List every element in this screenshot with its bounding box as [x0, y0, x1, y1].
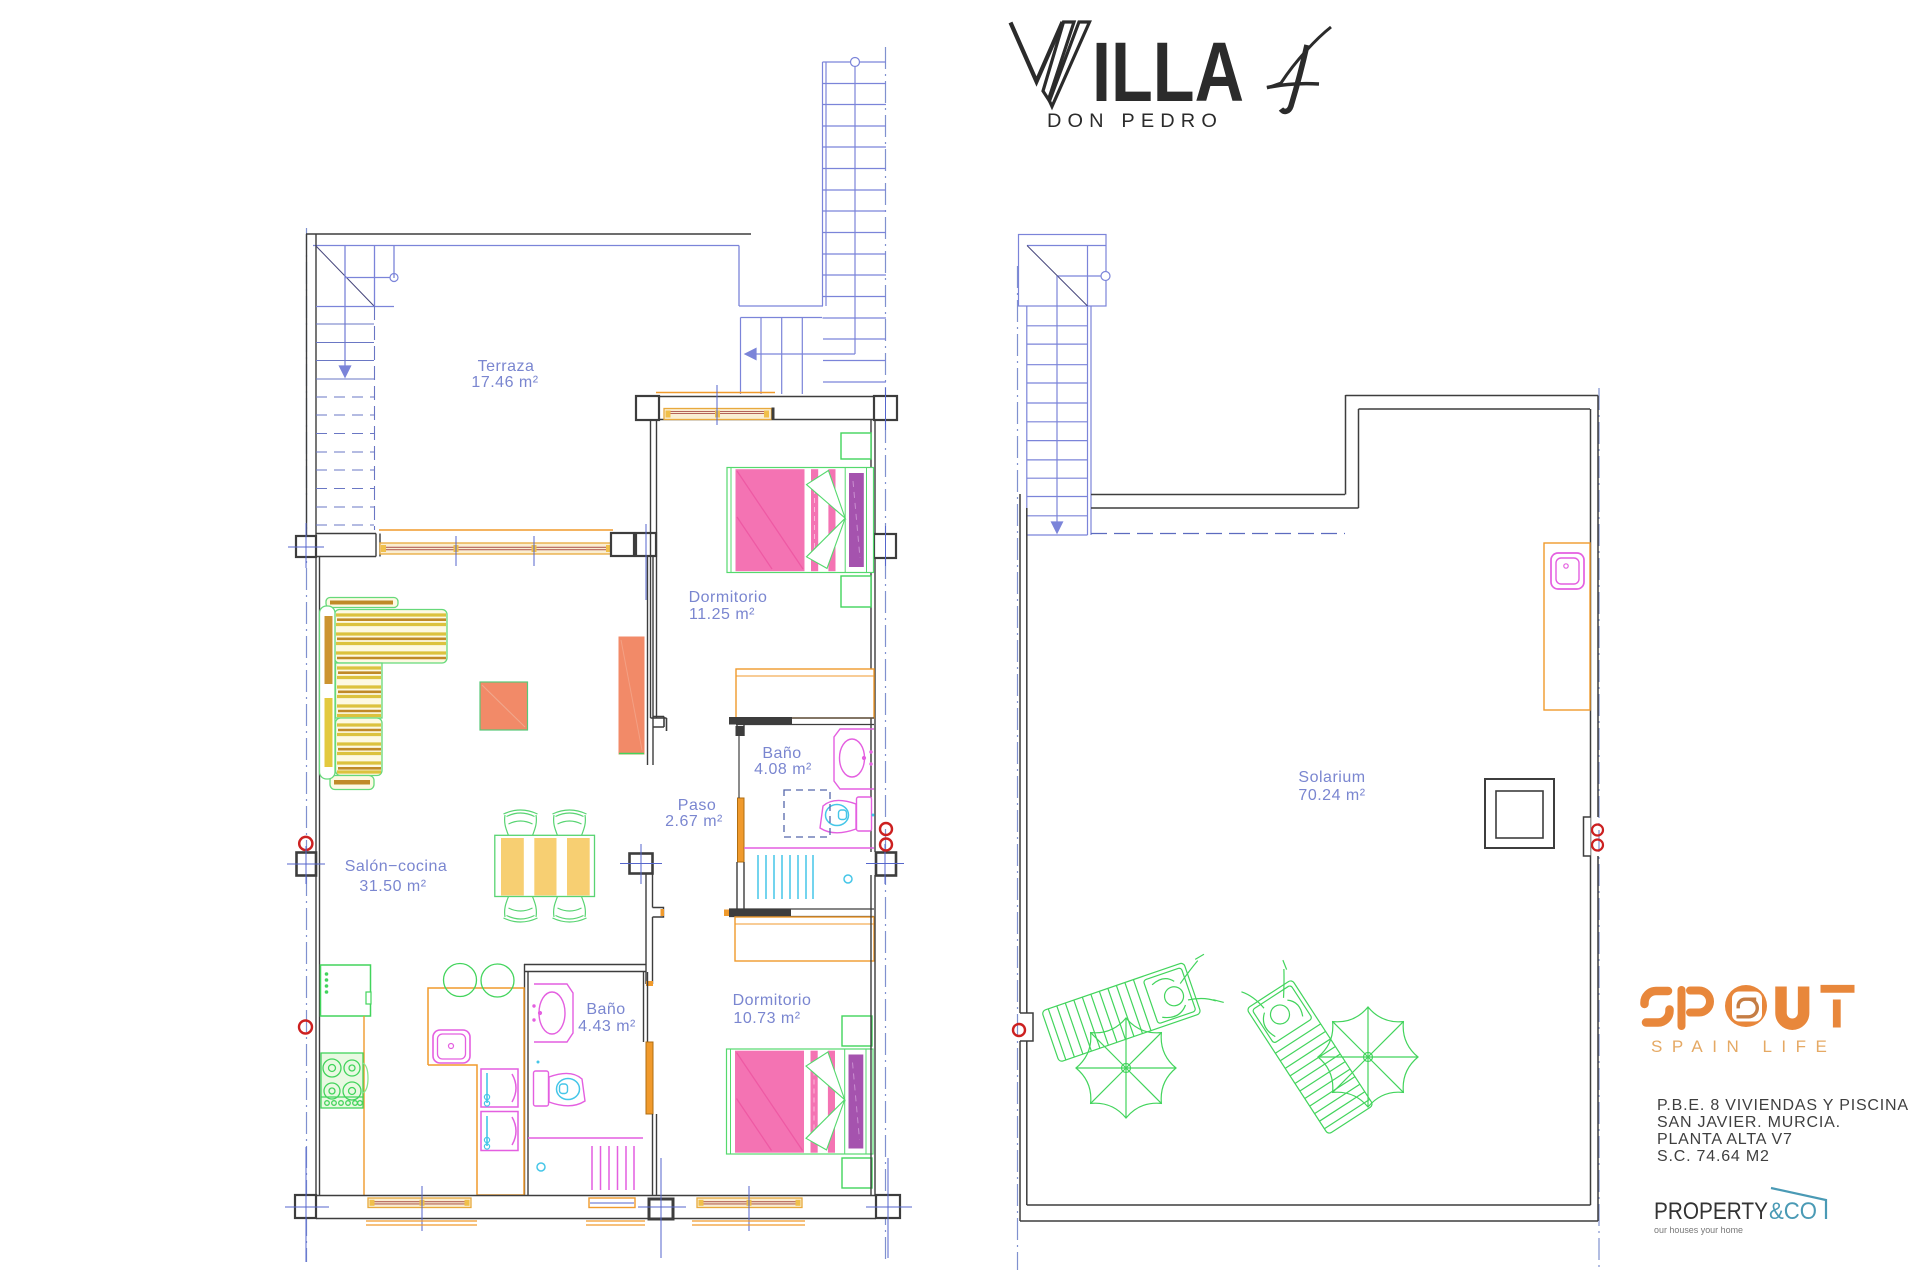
svg-text:Dormitorio: Dormitorio — [689, 589, 768, 606]
svg-text:our houses your home: our houses your home — [1654, 1225, 1743, 1236]
svg-text:Salón−cocina: Salón−cocina — [345, 858, 448, 875]
svg-text:ILLA: ILLA — [1092, 25, 1244, 119]
svg-text:70.24 m²: 70.24 m² — [1298, 787, 1365, 804]
svg-text:11.25 m²: 11.25 m² — [689, 606, 755, 623]
svg-text:SPAIN LIFE: SPAIN LIFE — [1651, 1037, 1836, 1056]
svg-text:PLANTA ALTA V7: PLANTA ALTA V7 — [1657, 1131, 1793, 1148]
svg-text:2.67 m²: 2.67 m² — [665, 813, 723, 830]
svg-text:Dormitorio: Dormitorio — [733, 992, 812, 1009]
svg-text:31.50 m²: 31.50 m² — [359, 878, 426, 895]
svg-text:4.43 m²: 4.43 m² — [578, 1018, 636, 1035]
svg-text:S.C. 74.64 M2: S.C. 74.64 M2 — [1657, 1148, 1770, 1165]
svg-text:10.73 m²: 10.73 m² — [733, 1010, 800, 1027]
svg-text:PROPERTY: PROPERTY — [1654, 1198, 1768, 1225]
svg-text:Terraza: Terraza — [478, 358, 535, 375]
svg-text:Solarium: Solarium — [1298, 769, 1365, 786]
svg-text:4.08 m²: 4.08 m² — [754, 761, 812, 778]
svg-text:17.46 m²: 17.46 m² — [471, 374, 538, 391]
svg-text:Baño: Baño — [586, 1001, 625, 1018]
svg-text:SAN JAVIER. MURCIA.: SAN JAVIER. MURCIA. — [1657, 1114, 1841, 1131]
svg-text:Paso: Paso — [678, 797, 716, 814]
svg-text:DON PEDRO: DON PEDRO — [1047, 110, 1223, 132]
svg-text:&CO: &CO — [1769, 1198, 1817, 1225]
svg-text:P.B.E. 8 VIVIENDAS Y PISCINA: P.B.E. 8 VIVIENDAS Y PISCINA — [1657, 1097, 1909, 1114]
svg-text:Baño: Baño — [762, 745, 801, 762]
